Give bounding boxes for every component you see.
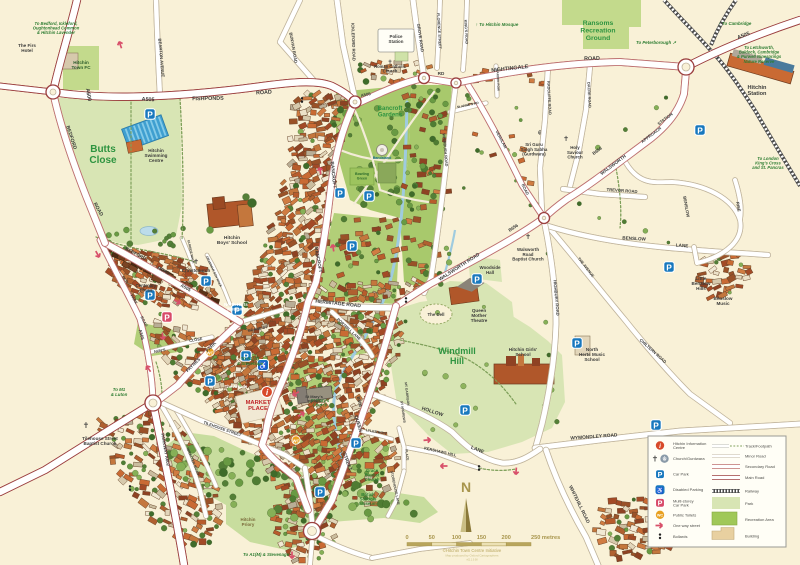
svg-text:P: P bbox=[474, 274, 480, 284]
svg-text:Car Park: Car Park bbox=[673, 472, 689, 477]
svg-text:and St. Pancras: and St. Pancras bbox=[752, 165, 784, 170]
svg-text:Ransoms: Ransoms bbox=[583, 20, 614, 27]
svg-text:250 metres: 250 metres bbox=[531, 535, 560, 541]
svg-text:Church: Church bbox=[383, 69, 398, 74]
svg-text:Church/Gurdwara: Church/Gurdwara bbox=[673, 456, 705, 461]
svg-text:Centre: Centre bbox=[673, 445, 686, 450]
svg-text:WC: WC bbox=[293, 438, 300, 443]
svg-text:Bollards: Bollards bbox=[673, 534, 687, 539]
svg-text:Railway: Railway bbox=[745, 489, 759, 494]
svg-text:RD: RD bbox=[438, 71, 445, 76]
svg-text:FISHPONDS: FISHPONDS bbox=[192, 96, 224, 103]
svg-text:0: 0 bbox=[405, 535, 408, 541]
svg-text:Minor Road: Minor Road bbox=[745, 454, 766, 459]
svg-text:To A1(M) & Stevenage: To A1(M) & Stevenage bbox=[243, 552, 290, 557]
svg-text:☬: ☬ bbox=[662, 455, 667, 463]
svg-text:Public Toilets: Public Toilets bbox=[673, 512, 696, 517]
svg-text:Hitchin: Hitchin bbox=[748, 85, 768, 91]
svg-text:P: P bbox=[337, 188, 343, 198]
svg-text:Ground: Ground bbox=[586, 35, 611, 42]
svg-text:Square: Square bbox=[307, 398, 321, 403]
svg-text:LANE: LANE bbox=[676, 243, 689, 249]
svg-text:Christchurch: Christchurch bbox=[182, 268, 211, 273]
svg-text:↑ To Hitchin Mosque: ↑ To Hitchin Mosque bbox=[476, 22, 519, 27]
svg-text:Secondary Road: Secondary Road bbox=[745, 464, 775, 469]
svg-text:& Luton: & Luton bbox=[111, 392, 128, 397]
svg-text:Car Park: Car Park bbox=[673, 503, 689, 508]
svg-text:P: P bbox=[653, 420, 659, 430]
svg-text:Bancroft: Bancroft bbox=[378, 106, 403, 112]
svg-text:Station: Station bbox=[389, 39, 404, 44]
svg-text:P: P bbox=[353, 438, 359, 448]
svg-text:ROAD: ROAD bbox=[584, 56, 600, 62]
svg-text:& Hitchin Lavender: & Hitchin Lavender bbox=[37, 30, 76, 35]
svg-text:Baptist Church: Baptist Church bbox=[512, 257, 544, 262]
svg-text:✝: ✝ bbox=[83, 421, 90, 430]
svg-text:v01.1.0.08: v01.1.0.08 bbox=[466, 559, 478, 562]
svg-text:P: P bbox=[317, 487, 323, 497]
svg-text:Baptist Church: Baptist Church bbox=[84, 441, 117, 446]
svg-text:House: House bbox=[140, 288, 153, 293]
svg-text:PLACE: PLACE bbox=[248, 406, 268, 412]
svg-text:Centre: Centre bbox=[149, 158, 164, 163]
svg-text:Disabled Parking: Disabled Parking bbox=[673, 487, 703, 492]
svg-text:Close: Close bbox=[89, 155, 117, 166]
svg-text:P: P bbox=[203, 276, 209, 286]
svg-text:Church: Church bbox=[364, 477, 379, 482]
svg-text:Station: Station bbox=[748, 91, 768, 97]
svg-text:100: 100 bbox=[452, 535, 461, 541]
svg-text:P: P bbox=[147, 109, 153, 119]
svg-text:Museum: Museum bbox=[359, 501, 377, 506]
svg-text:To Peterborough ↗: To Peterborough ↗ bbox=[636, 40, 676, 45]
svg-text:i: i bbox=[659, 443, 661, 450]
svg-text:Hotel: Hotel bbox=[21, 48, 32, 53]
svg-text:Hill: Hill bbox=[450, 356, 464, 366]
svg-text:The Arcade: The Arcade bbox=[225, 384, 248, 389]
svg-text:↑ To Cambridge: ↑ To Cambridge bbox=[719, 21, 752, 26]
svg-text:P: P bbox=[658, 499, 663, 508]
svg-text:200: 200 bbox=[502, 535, 511, 541]
svg-text:Main Road: Main Road bbox=[745, 475, 764, 480]
svg-text:N: N bbox=[461, 479, 471, 495]
svg-text:ROAD: ROAD bbox=[256, 89, 272, 96]
svg-text:P: P bbox=[164, 312, 170, 322]
svg-text:& Stevenage: & Stevenage bbox=[237, 361, 264, 366]
svg-text:Map produced by Oxford Cartogr: Map produced by Oxford Cartographers bbox=[445, 554, 499, 558]
svg-text:Theatre: Theatre bbox=[471, 318, 488, 323]
svg-text:Museum: Museum bbox=[227, 307, 245, 312]
svg-text:Bowling: Bowling bbox=[355, 172, 369, 176]
svg-text:One way street: One way street bbox=[673, 523, 701, 528]
svg-text:Windmill: Windmill bbox=[438, 346, 475, 356]
svg-text:School: School bbox=[584, 357, 599, 362]
svg-text:Nature Reserve: Nature Reserve bbox=[744, 59, 775, 64]
svg-text:Boys' School: Boys' School bbox=[217, 240, 247, 246]
svg-text:P: P bbox=[207, 376, 213, 386]
svg-text:P: P bbox=[349, 241, 355, 251]
svg-text:Butts: Butts bbox=[90, 144, 116, 155]
svg-text:P: P bbox=[666, 262, 672, 272]
svg-text:MARKET: MARKET bbox=[246, 400, 271, 406]
svg-text:Hall: Hall bbox=[486, 270, 494, 275]
svg-text:Hills: Hills bbox=[696, 286, 706, 291]
svg-text:✝: ✝ bbox=[652, 455, 659, 464]
svg-text:School: School bbox=[515, 352, 530, 357]
svg-text:Recreation Area: Recreation Area bbox=[745, 517, 774, 522]
svg-text:Bandstand: Bandstand bbox=[373, 156, 392, 160]
svg-text:50: 50 bbox=[429, 535, 435, 541]
svg-text:P: P bbox=[366, 191, 372, 201]
svg-text:P: P bbox=[658, 470, 663, 479]
svg-text:Park: Park bbox=[745, 501, 753, 506]
svg-text:Town FC: Town FC bbox=[71, 65, 91, 70]
svg-text:P: P bbox=[462, 405, 468, 415]
svg-text:Hitchin: Hitchin bbox=[224, 235, 240, 241]
svg-text:The Dell: The Dell bbox=[427, 312, 444, 317]
svg-text:P: P bbox=[574, 338, 580, 348]
svg-text:♿: ♿ bbox=[656, 486, 664, 494]
svg-text:Green: Green bbox=[357, 177, 367, 181]
svg-text:A505: A505 bbox=[141, 97, 154, 104]
svg-text:Building: Building bbox=[745, 534, 759, 539]
svg-text:©Hitchin Town Centre Initiativ: ©Hitchin Town Centre Initiative bbox=[443, 548, 502, 553]
svg-text:Priory: Priory bbox=[242, 522, 255, 527]
svg-text:Church: Church bbox=[567, 155, 583, 160]
svg-text:P: P bbox=[697, 125, 703, 135]
svg-text:Music: Music bbox=[716, 301, 729, 306]
svg-text:✝: ✝ bbox=[563, 135, 569, 143]
svg-text:Gardens: Gardens bbox=[378, 113, 403, 119]
svg-text:150: 150 bbox=[477, 535, 486, 541]
svg-text:Track/Footpath: Track/Footpath bbox=[745, 444, 772, 449]
svg-text:Recreation: Recreation bbox=[580, 27, 615, 34]
svg-text:WC: WC bbox=[657, 514, 664, 518]
svg-text:(Gurdwara): (Gurdwara) bbox=[522, 152, 546, 157]
